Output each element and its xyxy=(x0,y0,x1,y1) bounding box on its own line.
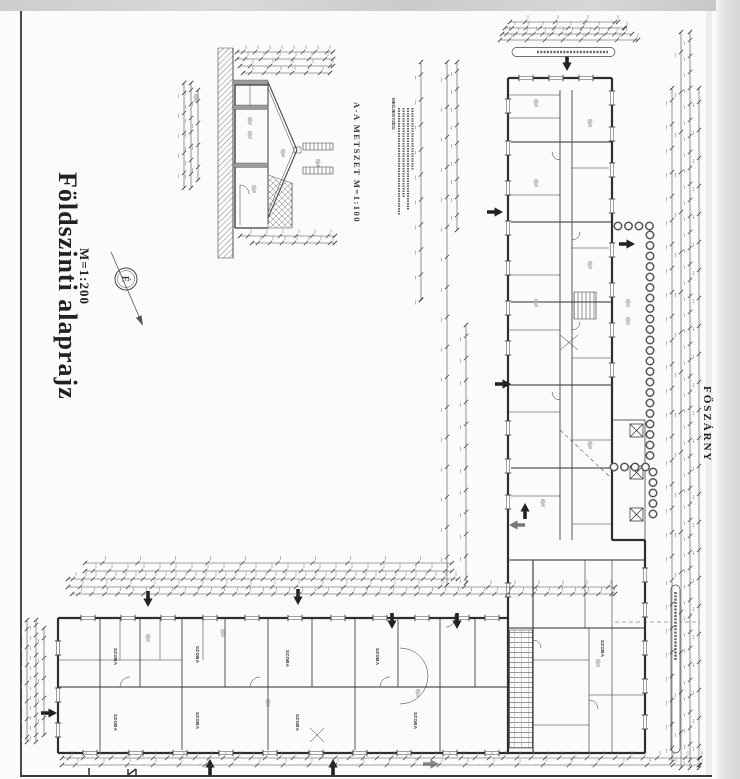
north-letter: É xyxy=(121,276,131,282)
room-label: SZOBA xyxy=(295,714,300,731)
floor-plan-drawing: É xyxy=(0,0,740,779)
bottom-wing-plan xyxy=(55,615,508,756)
room-label: SZOBA xyxy=(113,714,118,731)
scan-stray-marks xyxy=(89,768,136,775)
room-label: SZOBA xyxy=(375,648,380,665)
room-label: SZOBA xyxy=(195,712,200,729)
section-detail xyxy=(194,48,334,258)
room-label: SZOBA xyxy=(413,712,418,729)
street-label-right xyxy=(671,585,680,753)
scanned-drawing-page: É Földszinti alaprajz M=1:200 A-A METSZE… xyxy=(0,0,740,779)
section-label: A-A METSZET M=1:100 xyxy=(352,102,362,223)
drawing-scale: M=1:200 xyxy=(76,248,92,305)
entrance-arrows xyxy=(41,55,635,775)
notes-heading: MEGJEGYZÉS: xyxy=(391,98,396,131)
room-label: SZOBA xyxy=(600,640,605,657)
room-label: SZOBA xyxy=(285,650,290,667)
room-label: SZOBA xyxy=(195,646,200,663)
street-label-top xyxy=(512,48,615,57)
notes-text-lines xyxy=(399,108,413,215)
room-label: SZOBA xyxy=(113,648,118,665)
wing-name-label: FŐSZÁRNY xyxy=(701,386,713,463)
north-arrow: É xyxy=(111,252,143,326)
